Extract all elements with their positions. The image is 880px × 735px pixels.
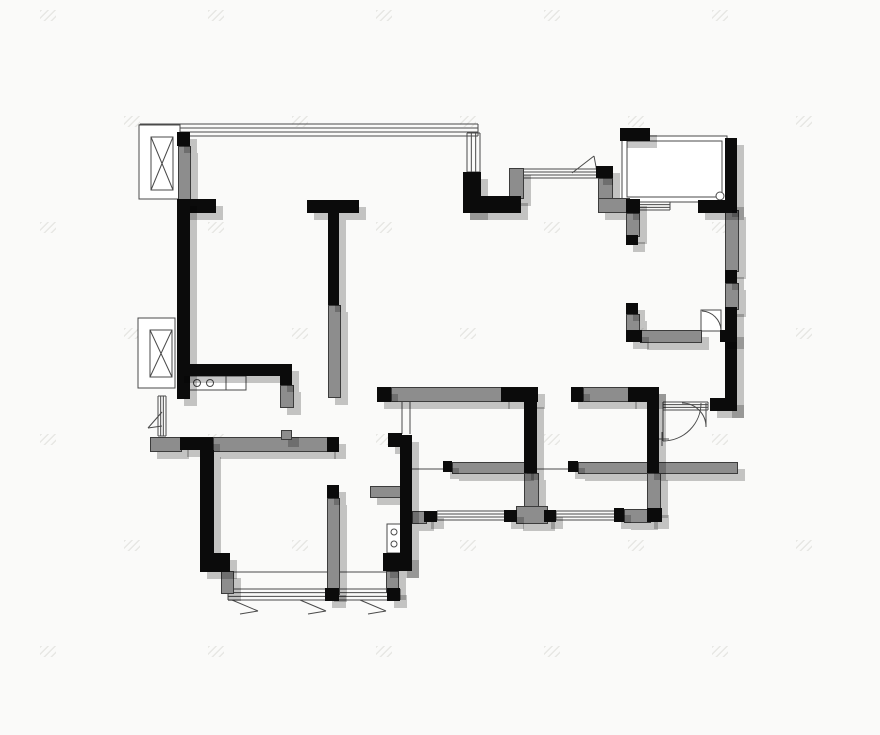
wall-segment-black	[307, 200, 359, 213]
plan-hairline	[232, 600, 258, 611]
wall-segment-gray	[725, 283, 739, 310]
wall-segment-black	[327, 437, 339, 452]
wall-segment-black	[524, 400, 537, 473]
wall-segment-black	[596, 166, 613, 178]
entry-door-swing-arc	[663, 403, 701, 441]
wall-segment-black	[387, 588, 400, 601]
wall-segment-black	[568, 461, 578, 472]
wall-segment-gray	[221, 571, 234, 594]
wall-segment-gray	[391, 387, 503, 402]
wall-segment-black	[647, 387, 659, 473]
wall-segment-black	[180, 437, 213, 450]
wall-segment-black	[626, 199, 640, 213]
wall-segment-black	[424, 511, 437, 522]
wall-segment-black	[377, 387, 391, 402]
plan-symbols-layer	[0, 0, 880, 735]
balcony-frame-inner	[627, 141, 722, 197]
wall-segment-black	[614, 508, 624, 522]
kitchen-sink	[226, 376, 246, 390]
wall-segment-gray	[509, 168, 524, 199]
valve	[391, 529, 397, 535]
burner	[207, 380, 214, 387]
wall-segment-gray	[452, 462, 527, 474]
plan-hairline	[300, 600, 326, 611]
wall-segment-gray	[370, 486, 404, 498]
wall-segment-black	[620, 128, 650, 141]
wall-segment-black	[400, 435, 412, 571]
wall-segment-gray	[626, 213, 640, 237]
burner	[194, 380, 201, 387]
wall-segment-gray	[328, 305, 341, 398]
wall-segment-black	[544, 510, 556, 522]
plan-hairline	[148, 412, 162, 428]
wall-segment-black	[200, 450, 214, 555]
wall-segment-gray	[524, 473, 539, 508]
plan-hairline	[360, 600, 386, 611]
wall-segment-gray	[213, 437, 329, 452]
wall-segment-gray	[281, 430, 292, 440]
wall-segment-black	[327, 485, 339, 498]
wall-segment-gray	[327, 498, 340, 595]
wall-segment-gray	[280, 385, 294, 408]
entry-door-second-leaf-arc	[682, 403, 706, 427]
valve	[391, 541, 397, 547]
wall-segment-black	[626, 303, 638, 314]
wall-segment-gray	[178, 146, 191, 201]
plan-hairline	[240, 611, 258, 614]
wall-segment-black	[177, 364, 283, 376]
wall-segment-black	[710, 398, 737, 411]
wall-segment-gray	[640, 330, 702, 343]
wall-segment-black	[463, 196, 521, 213]
wall-segment-black	[280, 364, 292, 385]
wall-segment-black	[325, 588, 339, 601]
wall-segment-gray	[647, 473, 661, 511]
floor-drain	[716, 192, 724, 200]
wall-segment-black	[571, 387, 583, 402]
wall-segment-black	[647, 508, 662, 522]
wall-segment-black	[626, 235, 638, 245]
wall-segment-gray	[150, 437, 182, 452]
wall-segment-black	[504, 510, 517, 522]
wall-segment-gray	[583, 387, 630, 402]
wall-segment-black	[725, 307, 737, 411]
wall-segment-black	[720, 330, 737, 342]
wall-segment-gray	[725, 210, 739, 272]
wall-segment-black	[200, 553, 230, 572]
wall-segment-black	[443, 461, 452, 472]
wall-segment-black	[725, 270, 737, 283]
plan-hairline	[572, 156, 594, 173]
plan-hairline	[308, 611, 326, 614]
floor-plan-canvas	[0, 0, 880, 735]
wall-segment-black	[383, 553, 412, 571]
wall-segment-black	[328, 213, 339, 305]
plan-hairline	[368, 611, 386, 614]
wall-segment-black	[725, 138, 737, 210]
wall-segment-black	[177, 132, 190, 146]
floor-plan	[0, 0, 880, 735]
wall-segment-black	[626, 330, 642, 342]
water-heater	[387, 524, 401, 553]
